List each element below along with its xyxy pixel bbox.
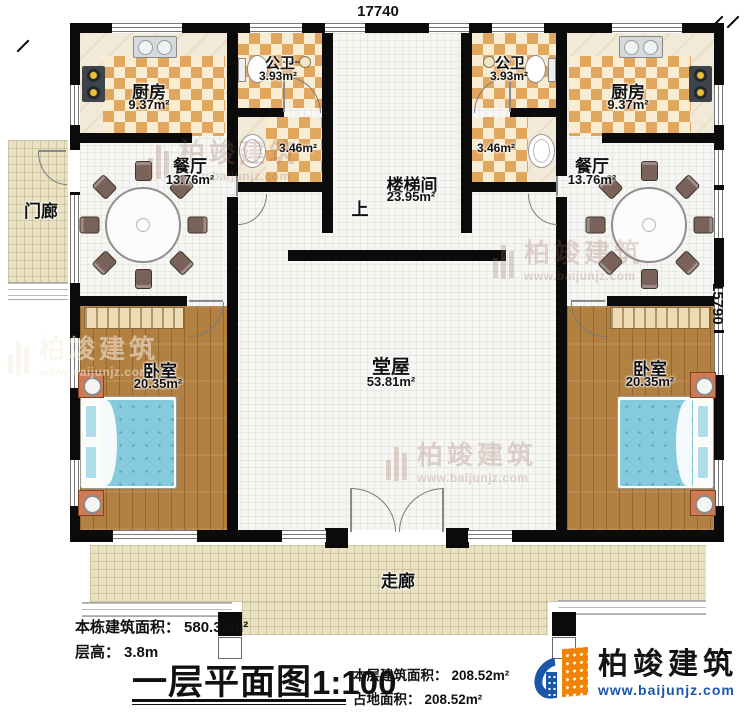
wall <box>556 197 567 530</box>
dining-right-area: 13.76m² <box>568 172 616 187</box>
door-leaf <box>189 300 223 302</box>
bath-left-area: 3.93m² <box>259 69 297 83</box>
title-underline <box>132 699 346 702</box>
footprint-area-value: 208.52m² <box>425 692 483 707</box>
wall <box>510 108 556 117</box>
window <box>282 530 326 542</box>
dimension-tick <box>727 16 740 29</box>
dining-table <box>105 187 181 263</box>
brand-url: www.baijunjz.com <box>598 682 738 698</box>
kitchen-sink <box>133 36 177 58</box>
building-area-note: 本栋建筑面积：580.32m² <box>75 616 248 637</box>
plan-title-text: 一层平面图 <box>132 663 312 702</box>
wall <box>80 133 192 143</box>
corridor-steps <box>82 602 232 617</box>
porch-steps <box>8 282 68 300</box>
wall <box>325 528 348 548</box>
window <box>492 23 544 33</box>
window <box>429 23 469 33</box>
window <box>325 23 365 33</box>
dining-chair <box>693 217 713 234</box>
door-leaf <box>571 300 605 302</box>
nightstand <box>690 490 716 516</box>
corridor-floor <box>242 602 548 635</box>
floor-height-label: 层高： <box>75 644 120 661</box>
wall <box>552 612 576 636</box>
kitchen-right-area: 9.37m² <box>607 97 648 112</box>
pillow <box>84 445 98 480</box>
wall <box>472 182 556 192</box>
window <box>70 85 80 125</box>
wall <box>238 108 284 117</box>
stairwell-area: 23.95m² <box>387 189 435 204</box>
door-leaf <box>350 488 352 532</box>
floor-area-value: 208.52m² <box>452 668 510 683</box>
bedroom-left-area: 20.35m² <box>134 376 182 391</box>
wall <box>556 33 567 176</box>
pillow <box>84 404 98 439</box>
wash-right-area: 3.46m² <box>477 141 515 155</box>
floor-area-label: 本层建筑面积： <box>353 668 448 683</box>
footprint-area-label: 占地面积： <box>353 692 421 707</box>
wall <box>446 528 469 548</box>
corridor-steps <box>558 600 706 615</box>
porch-label: 门廊 <box>24 197 58 222</box>
pillow <box>696 445 710 480</box>
bedroom-right-area: 20.35m² <box>626 374 674 389</box>
light-fixture <box>299 56 311 68</box>
toilet-tank <box>548 58 556 82</box>
window <box>112 23 182 33</box>
window <box>612 23 682 33</box>
washbasin <box>239 134 266 168</box>
wall <box>288 250 506 261</box>
dimension-tick <box>17 40 30 53</box>
dining-left-area: 13.76m² <box>166 172 214 187</box>
dining-chair <box>641 161 658 181</box>
dining-chair <box>135 269 152 289</box>
wall <box>70 296 187 306</box>
pillow <box>696 404 710 439</box>
door-opening <box>70 150 80 192</box>
window <box>113 530 197 542</box>
window <box>714 333 724 375</box>
stove <box>689 66 712 102</box>
toilet-bowl <box>525 55 546 83</box>
wall <box>227 33 238 176</box>
wall <box>238 182 322 192</box>
wall <box>607 296 724 306</box>
corridor-label: 走廊 <box>381 567 415 592</box>
dining-chair <box>135 161 152 181</box>
title-underline-thin <box>132 704 346 705</box>
door-leaf <box>556 176 558 196</box>
toilet-tank <box>238 58 246 82</box>
stove <box>82 66 105 102</box>
floor-plan-canvas: 17740 15790 神龛 厨房 9.37m² 厨房 9.37m² 公卫 3.… <box>0 0 750 715</box>
dining-chair <box>585 217 605 234</box>
window <box>70 195 80 283</box>
dimension-top: 17740 <box>357 3 399 20</box>
brand-logo: 柏竣建筑 www.baijunjz.com <box>536 648 738 708</box>
dimension-right: 15790 <box>709 283 726 325</box>
hall-area: 53.81m² <box>367 374 415 389</box>
logo-building-small-shape <box>546 672 557 698</box>
blanket-fold <box>676 400 692 486</box>
stairs-up-label: 上 <box>352 195 369 220</box>
kitchen-left-area: 9.37m² <box>128 97 169 112</box>
wall <box>227 197 238 530</box>
nightstand <box>78 490 104 516</box>
dining-chair <box>187 217 207 234</box>
brand-name: 柏竣建筑 <box>598 648 738 681</box>
door-leaf <box>38 150 66 152</box>
logo-building-shape <box>562 647 588 697</box>
wall <box>602 133 714 143</box>
window <box>714 150 724 185</box>
window <box>714 85 724 125</box>
window <box>468 530 512 542</box>
footprint-area-note: 占地面积：208.52m² <box>353 688 482 708</box>
dining-chair <box>641 269 658 289</box>
wall <box>461 33 472 233</box>
window <box>714 190 724 238</box>
door-leaf <box>442 488 444 532</box>
nightstand <box>78 372 104 398</box>
watermark-logo-icon <box>8 341 32 375</box>
window <box>250 23 302 33</box>
wall <box>322 33 333 233</box>
wardrobe <box>610 307 710 329</box>
washbasin <box>528 134 555 168</box>
brand-logo-icon <box>536 648 590 708</box>
bath-right-area: 3.93m² <box>490 69 528 83</box>
kitchen-sink <box>619 36 663 58</box>
building-area-label: 本栋建筑面积： <box>75 619 180 636</box>
floor-area-note: 本层建筑面积：208.52m² <box>353 664 509 684</box>
wardrobe <box>84 307 184 329</box>
wash-left-area: 3.46m² <box>279 141 317 155</box>
building-area-value: 580.32m² <box>184 619 248 636</box>
dining-chair <box>79 217 99 234</box>
nightstand <box>690 372 716 398</box>
dining-table <box>611 187 687 263</box>
door-leaf <box>236 176 238 196</box>
